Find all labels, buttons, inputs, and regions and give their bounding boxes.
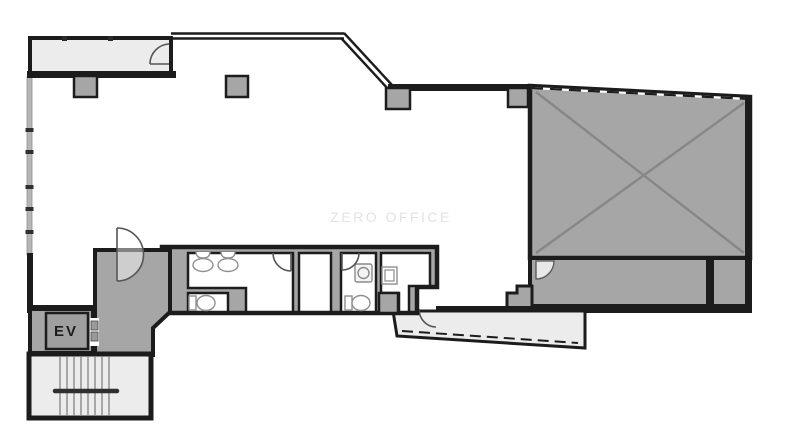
floor-plan: ZERO OFFICE	[0, 0, 787, 443]
store-room-small	[712, 258, 748, 306]
right-perimeter-wall	[745, 97, 752, 313]
floor-plan-page: ZERO OFFICE	[0, 0, 787, 443]
window-mullion-tick	[26, 150, 34, 154]
shower-box-icon	[382, 267, 397, 284]
vestibule	[299, 253, 331, 312]
column	[386, 88, 410, 109]
toilet-icon	[189, 296, 215, 311]
wall-pier-block	[379, 293, 398, 313]
entrance-porch	[27, 36, 176, 78]
window-mullion-tick	[26, 185, 34, 189]
column	[74, 76, 97, 97]
window-mullion-tick	[26, 207, 34, 211]
window-mullion-tick	[26, 128, 34, 132]
elevator-door-jamb	[91, 332, 98, 341]
column	[226, 76, 248, 97]
elevator-door-jamb	[91, 321, 98, 330]
void-room	[530, 86, 750, 258]
watermark-text: ZERO OFFICE	[330, 209, 452, 225]
left-window-wall	[26, 77, 34, 307]
room-divider-wall	[707, 260, 713, 305]
water-heater-icon	[355, 264, 372, 282]
sink-icon	[218, 252, 238, 272]
column	[508, 88, 528, 107]
store-room-large	[530, 258, 708, 306]
porch-window-tick	[62, 36, 67, 41]
elevator-label: EV	[54, 323, 78, 340]
toilet-icon	[345, 296, 370, 311]
sanitary-block	[162, 247, 437, 313]
elevator: EV	[30, 309, 99, 353]
staircase	[29, 354, 151, 418]
balcony	[393, 309, 585, 348]
porch-window-tick	[108, 36, 113, 41]
window-mullion-tick	[26, 230, 34, 234]
sink-icon	[193, 252, 213, 272]
